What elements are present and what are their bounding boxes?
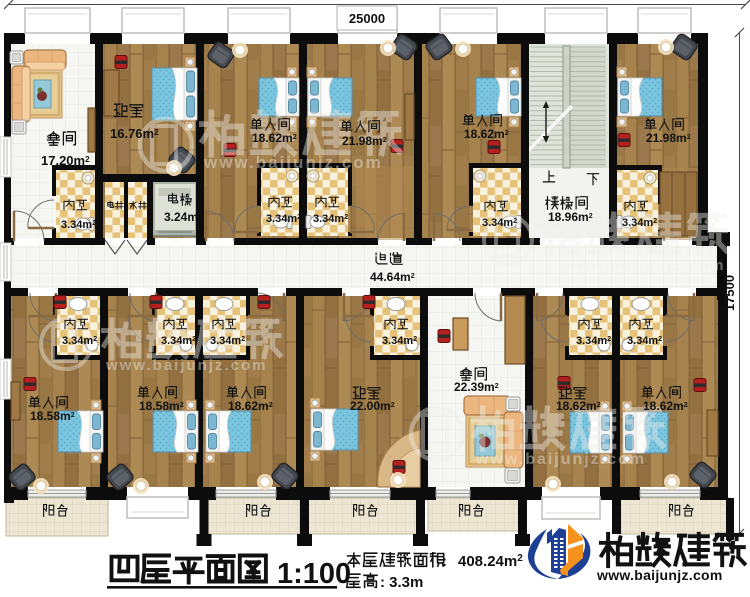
svg-text::: :: [442, 553, 447, 570]
svg-text:408.24m2: 408.24m2: [458, 553, 523, 570]
svg-text:3.34m2: 3.34m2: [627, 335, 662, 347]
svg-text:www.baijunjz.com: www.baijunjz.com: [203, 153, 383, 172]
svg-text:16.76m2: 16.76m2: [110, 126, 159, 141]
svg-text:18.58m2: 18.58m2: [30, 409, 75, 423]
svg-text:18.62m2: 18.62m2: [464, 127, 509, 141]
svg-text:21.98m2: 21.98m2: [342, 134, 387, 148]
svg-text:25000: 25000: [349, 11, 385, 26]
svg-text:3.24m2: 3.24m2: [164, 210, 202, 224]
svg-text:www.baijunjz.com: www.baijunjz.com: [105, 357, 267, 374]
svg-text:3.34m2: 3.34m2: [622, 217, 657, 229]
svg-text:3.34m2: 3.34m2: [313, 213, 348, 225]
svg-text:18.96m2: 18.96m2: [548, 210, 593, 224]
svg-text:18.62m2: 18.62m2: [643, 399, 688, 413]
svg-text:: 3.3m: : 3.3m: [380, 574, 423, 591]
svg-text:www.baijunjz.com: www.baijunjz.com: [475, 451, 646, 468]
svg-text:3.34m2: 3.34m2: [382, 335, 417, 347]
svg-text:3.34m2: 3.34m2: [576, 335, 611, 347]
svg-text:21.98m2: 21.98m2: [646, 131, 691, 145]
svg-text:17.20m2: 17.20m2: [41, 153, 90, 168]
svg-text:22.00m2: 22.00m2: [350, 399, 395, 413]
svg-text:3.34m2: 3.34m2: [161, 335, 196, 347]
svg-text:1:100: 1:100: [277, 558, 351, 590]
svg-text:18.62m2: 18.62m2: [252, 131, 297, 145]
svg-text:22.39m2: 22.39m2: [454, 380, 499, 394]
svg-text:www.baijunjz.com: www.baijunjz.com: [563, 257, 725, 274]
svg-text:18.58m2: 18.58m2: [139, 399, 184, 413]
svg-text:17500: 17500: [722, 275, 737, 311]
svg-text:3.34m2: 3.34m2: [482, 217, 517, 229]
svg-text:44.64m2: 44.64m2: [370, 270, 415, 284]
svg-text:3.34m2: 3.34m2: [62, 335, 97, 347]
svg-text:3.34m2: 3.34m2: [61, 219, 96, 231]
svg-text:3.34m2: 3.34m2: [210, 335, 245, 347]
svg-text:www.baijunjz.com: www.baijunjz.com: [596, 567, 723, 583]
svg-text:3.34m2: 3.34m2: [266, 213, 301, 225]
svg-text:18.62m2: 18.62m2: [228, 399, 273, 413]
svg-text:18.62m2: 18.62m2: [556, 399, 601, 413]
